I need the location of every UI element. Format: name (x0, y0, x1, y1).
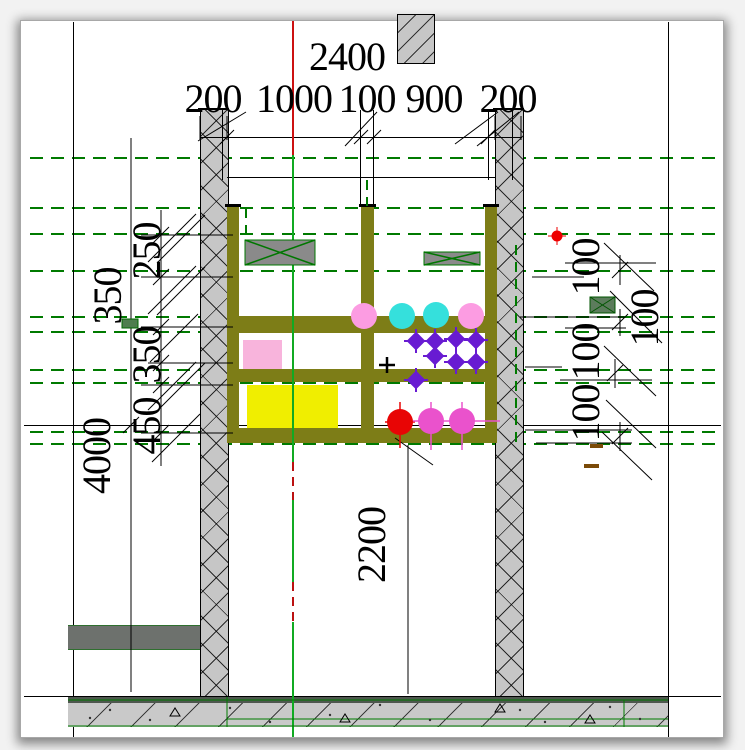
cad-drawing-viewport: 2400 200 1000 100 900 200 250 350 350 45… (0, 0, 745, 750)
dim-top-1000: 1000 (256, 79, 332, 119)
dim-left-450: 450 (127, 398, 167, 455)
dim-top-200b: 200 (480, 79, 537, 119)
dim-left-350mid: 350 (88, 268, 128, 325)
black-cross-marker (379, 357, 395, 373)
slab-detail (68, 697, 668, 727)
dim-left-250: 250 (127, 223, 167, 280)
dim-right-100d: 100 (566, 385, 606, 442)
dim-right-100b: 100 (625, 290, 665, 347)
dim-top-100: 100 (339, 79, 396, 119)
dim-top-total: 2400 (309, 37, 385, 77)
dim-left-350: 350 (127, 327, 167, 384)
dim-right-100c: 100 (566, 324, 606, 381)
dim-left-4000: 4000 (77, 418, 117, 494)
dim-interior-2200: 2200 (352, 507, 392, 583)
purple-diamond-markers (404, 327, 488, 392)
dim-right-100a: 100 (566, 239, 606, 296)
dim-top-200a: 200 (185, 79, 242, 119)
upper-circle-markers (351, 302, 484, 329)
dim-top-900: 900 (406, 79, 463, 119)
